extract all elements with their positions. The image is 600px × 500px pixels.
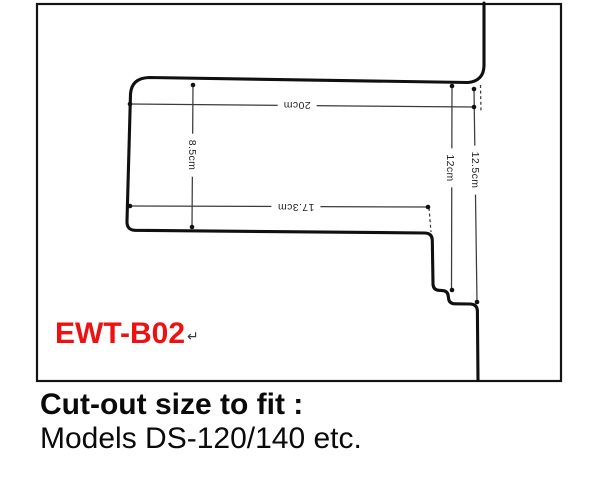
model-number-text: EWT-B02 <box>55 317 185 350</box>
dimension-label-top-width: 20cm <box>277 99 316 111</box>
dimension-label-right-depth: 12cm <box>444 148 456 187</box>
dimension-endpoint-dots <box>128 83 480 305</box>
dimension-label-bottom-width: 17.3cm <box>272 201 321 213</box>
caption-subtitle: Models DS-120/140 etc. <box>40 422 362 456</box>
caption-block: Cut-out size to fit : Models DS-120/140 … <box>40 387 362 456</box>
dimension-lines <box>130 85 477 302</box>
cutout-template-sheet: 20cm 17.3cm 8.5cm 12cm 12.5cm EWT-B02↵ C… <box>0 0 600 500</box>
return-mark-icon: ↵ <box>187 328 199 344</box>
model-number-label: EWT-B02↵ <box>55 317 199 351</box>
caption-title: Cut-out size to fit : <box>40 387 362 422</box>
dimension-label-left-height: 8.5cm <box>186 134 198 177</box>
dimension-label-far-right-depth: 12.5cm <box>469 146 481 195</box>
